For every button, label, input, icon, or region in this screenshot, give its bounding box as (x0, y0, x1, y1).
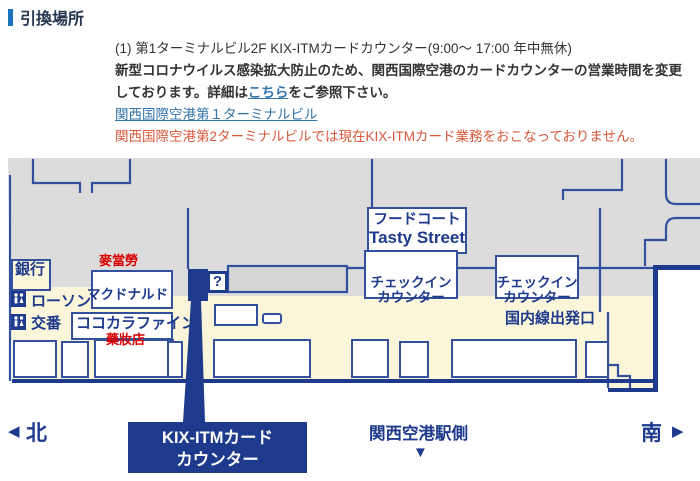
checkin-counter-label-1: チェックイン (365, 276, 457, 290)
lawson-label: ローソン (31, 294, 91, 309)
cocokara-fine-label: ココカラファイン (76, 316, 196, 331)
terminal2-warning: 関西国際空港第2ターミナルビルでは現在KIX-ITMカード業務をおこなっておりま… (115, 125, 643, 145)
mcdonalds-label: マクドナルド (87, 288, 168, 302)
domestic-departure-label: 国内線出発口 (505, 311, 595, 326)
toilet-icon (11, 291, 26, 307)
page-title: 引換場所 (20, 5, 84, 29)
south-label: 南 (641, 417, 662, 447)
details-link[interactable]: こちら (248, 85, 289, 100)
kix-itm-counter-callout: KIX-ITMカード カウンター (128, 422, 307, 473)
kix-counter-line1: KIX-ITMカード (128, 427, 307, 449)
food-court-label-en: Tasty Street (368, 229, 466, 246)
terminal-map: 銀行 ローソン 交番 ココカラファイン マクドナルド 麥當勞 藥妝店 フードコー… (0, 155, 700, 481)
checkin-counter-label-2b: カウンター (496, 291, 578, 305)
accent-bar (8, 9, 13, 26)
terminal1-link[interactable]: 関西国際空港第１ターミナルビル (115, 107, 318, 122)
drugstore-chinese-label: 藥妝店 (106, 333, 145, 346)
station-down-arrow-icon: ▼ (413, 444, 428, 461)
mcdonalds-chinese-label: 麥當勞 (99, 254, 138, 267)
covid-notice-post: をご参照下さい。 (288, 85, 396, 100)
kix-counter-line2: カウンター (128, 449, 307, 471)
covid-notice-line1: 新型コロナウイルス感染拡大防止のため、関西国際空港のカードカウンターの営業時間を… (115, 59, 682, 79)
covid-notice-line2: しております。詳細はこちらをご参照下さい。 (115, 81, 396, 101)
information-icon: ? (207, 271, 228, 293)
terminal-link-line: 関西国際空港第１ターミナルビル (115, 103, 318, 123)
police-box-label: 交番 (31, 316, 61, 331)
checkin-counter-label-1b: カウンター (365, 291, 457, 305)
north-label: 北 (26, 417, 47, 447)
north-arrow-icon: ◀ (8, 422, 20, 440)
checkin-counter-label-2: チェックイン (496, 276, 578, 290)
section-header: 引換場所 (8, 5, 84, 29)
food-court-label-jp: フードコート (368, 213, 466, 228)
toilet-icon (11, 314, 26, 330)
station-side-label: 関西空港駅側 (369, 420, 468, 444)
bank-label: 銀行 (15, 262, 45, 277)
south-arrow-icon: ▶ (672, 422, 684, 440)
counter-info-line: (1) 第1ターミナルビル2F KIX-ITMカードカウンター(9:00～ 17… (115, 37, 572, 57)
covid-notice-pre: しております。詳細は (115, 85, 248, 100)
exchange-location-page: 引換場所 (1) 第1ターミナルビル2F KIX-ITMカードカウンター(9:0… (0, 0, 700, 481)
